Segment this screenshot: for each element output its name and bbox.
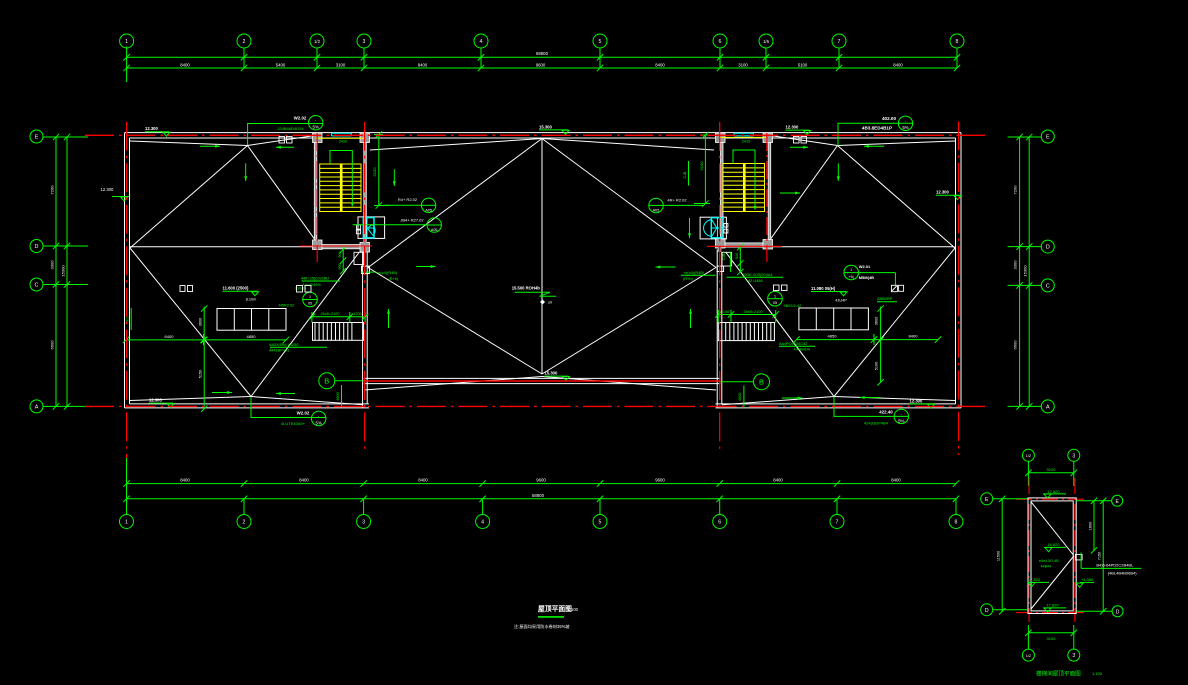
svg-text:1: 1 bbox=[125, 39, 128, 45]
svg-text:12.300: 12.300 bbox=[786, 125, 799, 130]
svg-text:3300: 3300 bbox=[1013, 260, 1018, 270]
svg-text:6600: 6600 bbox=[50, 340, 55, 350]
svg-text:E: E bbox=[35, 135, 39, 141]
svg-text:7150: 7150 bbox=[1098, 552, 1102, 560]
svg-text:9600: 9600 bbox=[536, 478, 546, 483]
svg-text:J24B46D4G24: J24B46D4G24 bbox=[277, 126, 304, 131]
svg-text:e4e4 5O.4B: e4e4 5O.4B bbox=[1039, 559, 1059, 563]
svg-text:15.300: 15.300 bbox=[539, 124, 552, 129]
svg-text:5100: 5100 bbox=[699, 161, 704, 171]
svg-text:402.00: 402.00 bbox=[882, 116, 896, 121]
svg-text:12.300: 12.300 bbox=[149, 398, 162, 403]
svg-text:8.10m: 8.10m bbox=[246, 297, 257, 301]
svg-text:8400: 8400 bbox=[773, 478, 783, 483]
svg-text:8400: 8400 bbox=[418, 478, 428, 483]
svg-text:C1B: C1B bbox=[683, 171, 687, 178]
svg-text:8400: 8400 bbox=[180, 63, 190, 68]
svg-text:ANB2BP: ANB2BP bbox=[877, 296, 893, 301]
svg-text:900: 900 bbox=[338, 264, 342, 270]
svg-text:3600: 3600 bbox=[875, 317, 879, 325]
svg-text:W2.01: W2.01 bbox=[859, 264, 871, 269]
svg-text:4800: 4800 bbox=[738, 393, 742, 401]
svg-text:8400: 8400 bbox=[655, 63, 665, 68]
svg-text:12.300: 12.300 bbox=[936, 190, 949, 195]
svg-text:900: 900 bbox=[126, 316, 130, 322]
svg-text:C: C bbox=[1046, 284, 1050, 290]
svg-text:6: 6 bbox=[719, 39, 722, 45]
svg-text:M5M(4B: M5M(4B bbox=[859, 275, 874, 280]
svg-text:12.300: 12.300 bbox=[145, 126, 158, 131]
svg-text:8: 8 bbox=[955, 520, 958, 526]
svg-text:E: E bbox=[985, 497, 989, 503]
svg-text:8: 8 bbox=[956, 39, 959, 45]
svg-text:R4+ R2.02: R4+ R2.02 bbox=[398, 197, 418, 202]
svg-text:9600: 9600 bbox=[536, 63, 546, 68]
svg-text:2: 2 bbox=[243, 39, 246, 45]
svg-text:58800: 58800 bbox=[532, 493, 545, 498]
svg-text:36x8=2100: 36x8=2100 bbox=[744, 310, 763, 314]
svg-text:422.40: 422.40 bbox=[879, 410, 893, 415]
svg-text:7200: 7200 bbox=[1013, 185, 1018, 195]
svg-text:4LUTE40A9+: 4LUTE40A9+ bbox=[281, 421, 306, 426]
svg-text:W2.02: W2.02 bbox=[297, 411, 310, 416]
svg-text:42.U484: 42.U484 bbox=[748, 278, 764, 283]
svg-text:3: 3 bbox=[363, 39, 366, 45]
svg-text:11500: 11500 bbox=[997, 551, 1001, 561]
svg-text:4850: 4850 bbox=[828, 334, 838, 339]
svg-text:1/2: 1/2 bbox=[314, 39, 320, 44]
svg-text:424(I3DP4B4: 424(I3DP4B4 bbox=[864, 421, 889, 426]
svg-text:17.820: 17.820 bbox=[1047, 489, 1060, 494]
svg-text:3: 3 bbox=[1072, 453, 1075, 459]
svg-text:3100: 3100 bbox=[738, 63, 748, 68]
svg-text:A05: A05 bbox=[425, 208, 432, 212]
svg-text:3100: 3100 bbox=[1047, 636, 1057, 641]
svg-text:150: 150 bbox=[723, 310, 729, 314]
svg-text:5400: 5400 bbox=[276, 63, 286, 68]
svg-text:444B4O4: 444B4O4 bbox=[794, 347, 811, 352]
svg-text:12.300: 12.300 bbox=[910, 398, 923, 403]
svg-text:(4BL4B4B06B4): (4BL4B4B06B4) bbox=[1108, 571, 1138, 576]
svg-text:+1.080: +1.080 bbox=[1081, 577, 1094, 582]
svg-text:15.300: 15.300 bbox=[545, 371, 558, 376]
svg-text:4I5R2.02: 4I5R2.02 bbox=[279, 302, 295, 307]
svg-text:AA5X49M 44250: AA5X49M 44250 bbox=[269, 342, 299, 347]
svg-text:5%: 5% bbox=[902, 125, 908, 130]
svg-text:15.500 ROH4b: 15.500 ROH4b bbox=[512, 285, 541, 290]
svg-text:A05: A05 bbox=[653, 209, 660, 213]
svg-text:4: 4 bbox=[481, 520, 484, 526]
svg-text:7200: 7200 bbox=[50, 185, 55, 195]
svg-text:39BE.4O5(204A4: 39BE.4O5(204A4 bbox=[742, 272, 773, 277]
svg-text:JB4+ R27.02: JB4+ R27.02 bbox=[400, 217, 424, 222]
svg-text:D: D bbox=[1116, 610, 1120, 616]
svg-text:4441BP+91: 4441BP+91 bbox=[269, 348, 289, 353]
svg-text:1200: 1200 bbox=[353, 312, 361, 316]
svg-text:D: D bbox=[35, 244, 39, 250]
svg-text:3300: 3300 bbox=[50, 260, 55, 270]
svg-text:3: 3 bbox=[1072, 653, 1075, 659]
svg-text:1/2: 1/2 bbox=[1026, 454, 1031, 458]
svg-text:1/2: 1/2 bbox=[1026, 654, 1031, 658]
svg-text:3100: 3100 bbox=[336, 63, 346, 68]
svg-text:5%: 5% bbox=[313, 125, 319, 130]
svg-text:17.820: 17.820 bbox=[1046, 603, 1059, 608]
svg-text:5: 5 bbox=[599, 520, 602, 526]
svg-text:8400: 8400 bbox=[418, 63, 428, 68]
svg-text:W2.02: W2.02 bbox=[294, 116, 307, 121]
svg-text:5%: 5% bbox=[898, 418, 904, 423]
svg-text:D: D bbox=[985, 608, 989, 614]
svg-text:8400: 8400 bbox=[180, 478, 190, 483]
svg-text:3100: 3100 bbox=[1047, 467, 1057, 472]
svg-text:4850: 4850 bbox=[247, 334, 257, 339]
svg-text:C1B0: C1B0 bbox=[722, 252, 726, 261]
svg-text:2: 2 bbox=[243, 520, 246, 526]
svg-text:3600: 3600 bbox=[198, 318, 202, 326]
svg-text:3: 3 bbox=[362, 520, 365, 526]
svg-text:44th.o5(co92BU: 44th.o5(co92BU bbox=[301, 275, 329, 280]
svg-text:26x8=2100: 26x8=2100 bbox=[321, 312, 340, 316]
svg-text:44B44: 44B44 bbox=[1041, 565, 1052, 569]
svg-text:11.080 05(H): 11.080 05(H) bbox=[811, 286, 836, 291]
svg-text:1: 1 bbox=[850, 268, 852, 272]
svg-text:(R+b): (R+b) bbox=[389, 276, 400, 281]
svg-text:15300: 15300 bbox=[1023, 265, 1028, 277]
svg-text:6600: 6600 bbox=[1013, 340, 1018, 350]
svg-text:D: D bbox=[1046, 245, 1050, 251]
svg-text:05: 05 bbox=[308, 302, 312, 306]
svg-text:A05: A05 bbox=[431, 228, 438, 232]
svg-text:B: B bbox=[324, 377, 329, 386]
svg-text:5100: 5100 bbox=[875, 362, 879, 370]
svg-text:910: 910 bbox=[735, 253, 739, 259]
svg-text:9B92/2.42: 9B92/2.42 bbox=[784, 303, 802, 308]
svg-text:1/6: 1/6 bbox=[763, 39, 769, 44]
svg-text:4800: 4800 bbox=[336, 392, 340, 400]
svg-text:8400: 8400 bbox=[299, 478, 309, 483]
svg-text:11.600 (2500): 11.600 (2500) bbox=[223, 286, 249, 291]
svg-text:6: 6 bbox=[718, 520, 721, 526]
svg-text:12.300: 12.300 bbox=[101, 187, 114, 192]
svg-text:E: E bbox=[1046, 135, 1050, 141]
svg-text:1:100: 1:100 bbox=[1092, 671, 1103, 676]
svg-text:6400: 6400 bbox=[165, 334, 175, 339]
svg-text:5150: 5150 bbox=[198, 370, 202, 378]
svg-text:7: 7 bbox=[836, 520, 839, 526]
svg-text:15300: 15300 bbox=[61, 265, 66, 277]
svg-text:+5(: +5( bbox=[849, 275, 855, 279]
svg-text:A: A bbox=[1046, 405, 1050, 411]
svg-text:17.820: 17.820 bbox=[1028, 577, 1041, 582]
svg-text:1: 1 bbox=[309, 295, 311, 299]
svg-text:5100: 5100 bbox=[372, 167, 377, 177]
svg-text:1600: 1600 bbox=[1088, 522, 1092, 530]
svg-text:4: 4 bbox=[480, 39, 483, 45]
svg-text:2410: 2410 bbox=[339, 140, 347, 144]
svg-text:4B3.8ED4B1P: 4B3.8ED4B1P bbox=[862, 126, 892, 131]
svg-text:8400: 8400 bbox=[909, 334, 919, 339]
svg-text:注:屋面均采用防水卷材35%坡: 注:屋面均采用防水卷材35%坡 bbox=[514, 623, 570, 630]
svg-text:7: 7 bbox=[838, 39, 841, 45]
svg-text:1: 1 bbox=[774, 294, 776, 298]
svg-text:41U4P: 41U4P bbox=[835, 299, 847, 303]
svg-text:5100: 5100 bbox=[798, 63, 808, 68]
svg-text:2410: 2410 bbox=[742, 140, 750, 144]
svg-text:900: 900 bbox=[338, 252, 342, 258]
svg-text:C: C bbox=[35, 283, 39, 289]
svg-text:5: 5 bbox=[599, 39, 602, 45]
svg-text:+e(c4)(R4B): +e(c4)(R4B) bbox=[376, 270, 398, 275]
svg-text:5%: 5% bbox=[316, 420, 322, 425]
svg-text:(R+b): (R+b) bbox=[683, 276, 694, 281]
svg-text:16.620: 16.620 bbox=[1047, 542, 1060, 547]
svg-text:58800: 58800 bbox=[536, 51, 549, 56]
svg-text:1:100: 1:100 bbox=[568, 607, 579, 612]
svg-text:A: A bbox=[35, 405, 39, 411]
svg-text:Aa4PO4925C42: Aa4PO4925C42 bbox=[779, 341, 807, 346]
svg-text:05: 05 bbox=[773, 301, 777, 305]
svg-text:B: B bbox=[759, 378, 764, 387]
svg-text:4R+ R2.02: 4R+ R2.02 bbox=[667, 197, 687, 202]
svg-text:+e(c4)(R4B): +e(c4)(R4B) bbox=[683, 270, 705, 275]
svg-text:8400: 8400 bbox=[893, 63, 903, 68]
svg-text:9600: 9600 bbox=[655, 478, 665, 483]
svg-text:u9: u9 bbox=[548, 301, 552, 305]
svg-text:8400: 8400 bbox=[891, 478, 901, 483]
svg-text:1: 1 bbox=[125, 520, 128, 526]
svg-text:B4)5-64PD2C2B4BL: B4)5-64PD2C2B4BL bbox=[1096, 562, 1134, 567]
svg-text:楼梯间屋顶平面图: 楼梯间屋顶平面图 bbox=[1036, 669, 1081, 677]
